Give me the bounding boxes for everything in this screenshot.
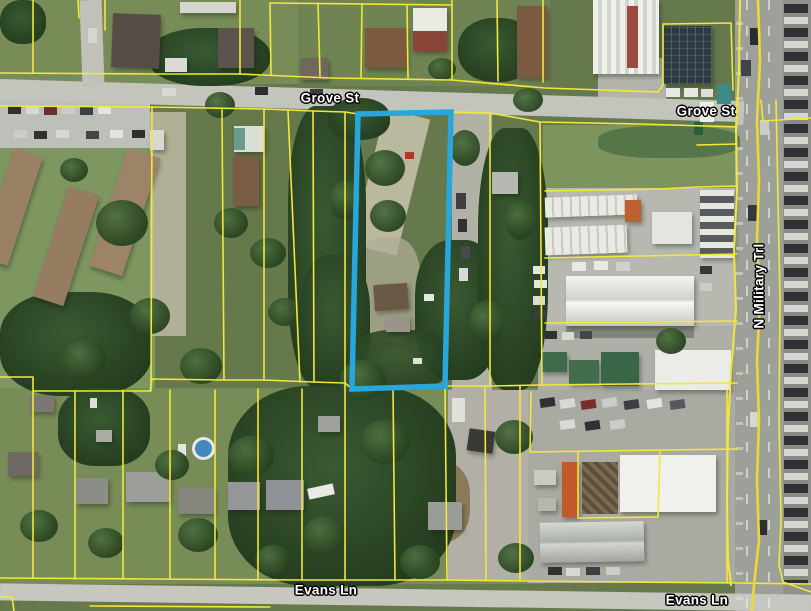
street-labels-layer: Grove StGrove StN Military TrlEvans LnEv…	[0, 0, 811, 611]
grove-st-label-1: Grove St	[301, 91, 360, 106]
n-military-trl-label: N Military Trl	[752, 243, 767, 328]
evans-ln-label-2: Evans Ln	[666, 593, 728, 608]
aerial-map-view[interactable]: Grove StGrove StN Military TrlEvans LnEv…	[0, 0, 811, 611]
grove-st-label-2: Grove St	[677, 104, 736, 119]
evans-ln-label-1: Evans Ln	[295, 583, 357, 598]
